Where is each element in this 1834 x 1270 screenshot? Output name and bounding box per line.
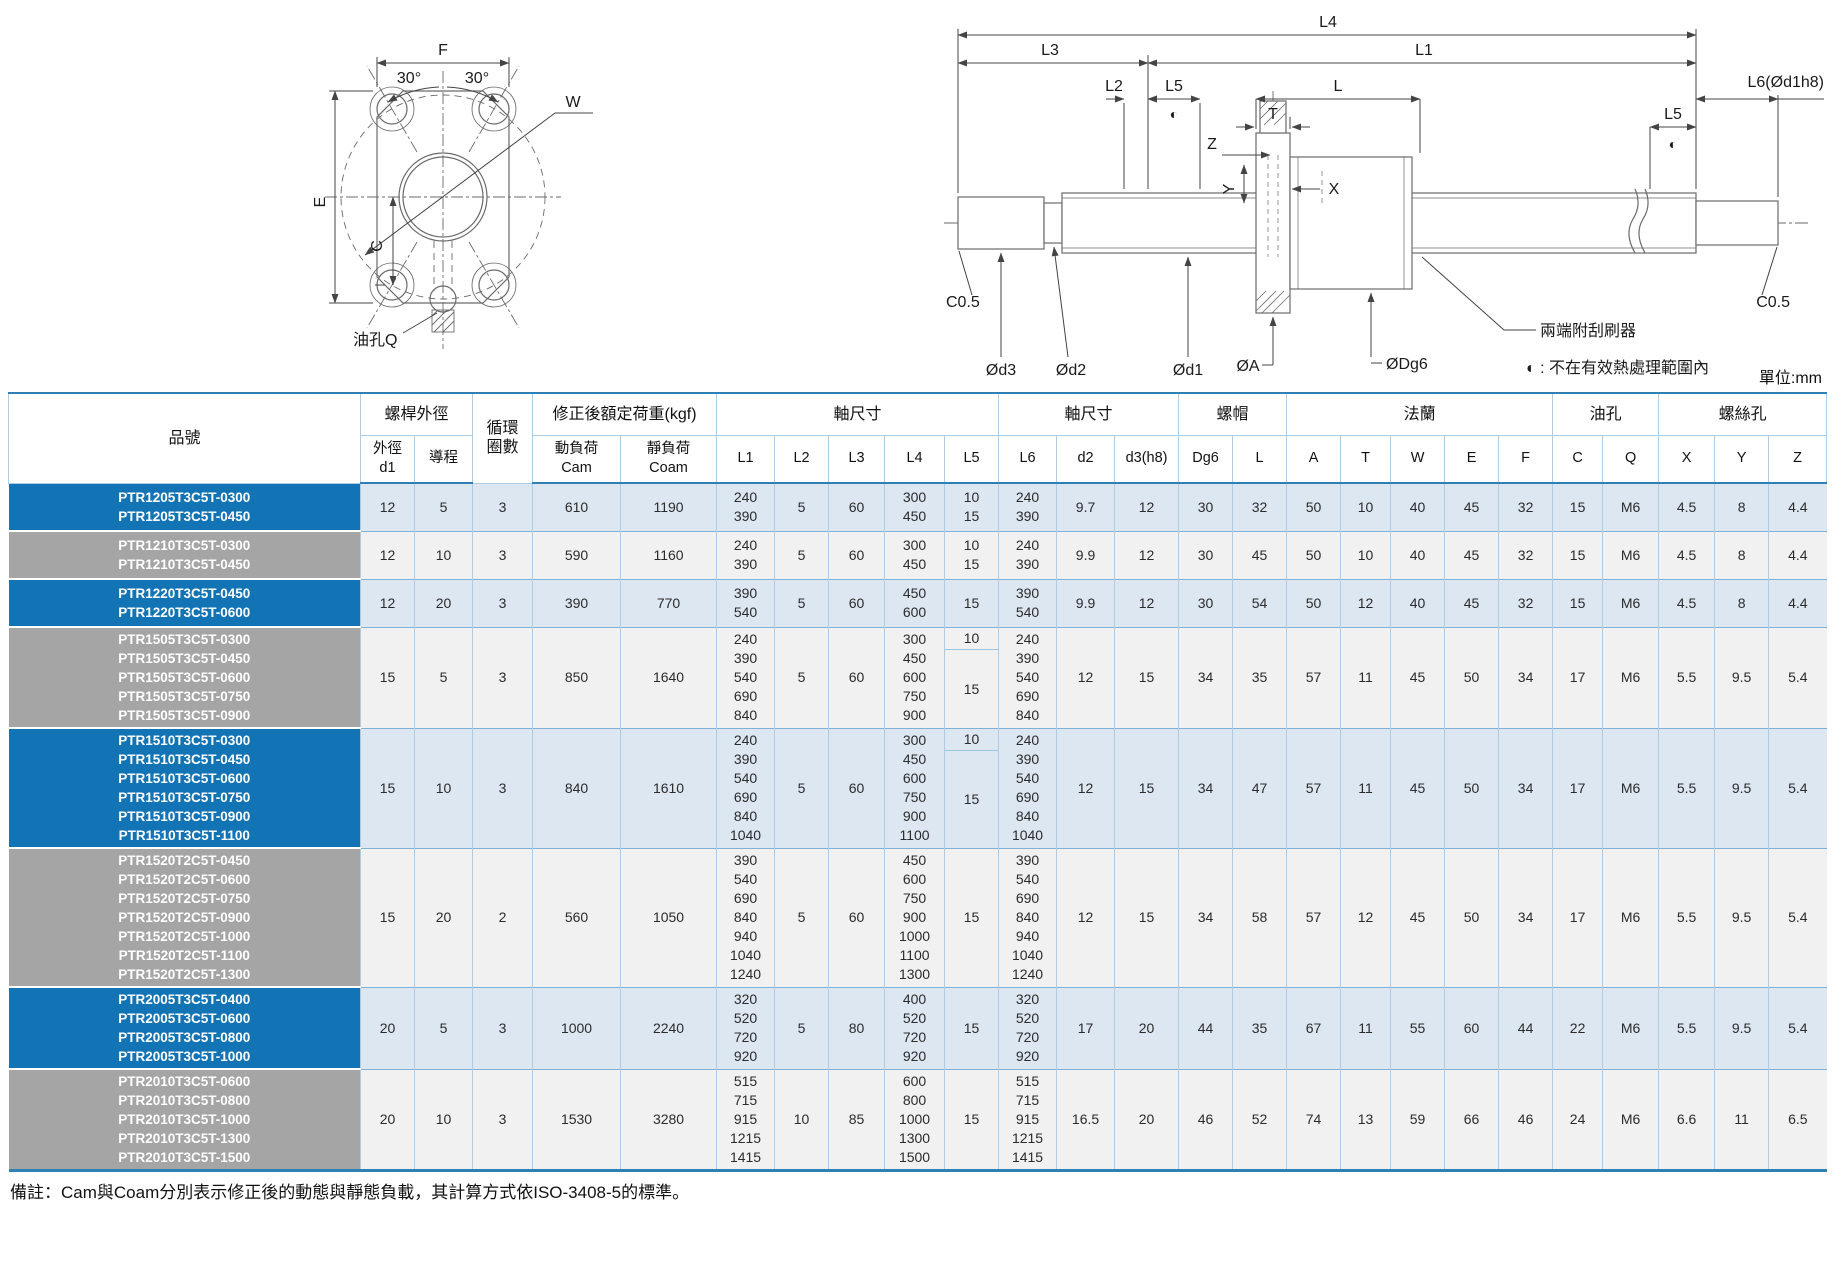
cell-lead: 10 [415, 1069, 473, 1171]
cell-L: 32 [1233, 483, 1287, 531]
cell-X: 6.6 [1659, 1069, 1715, 1171]
cell-L: 45 [1233, 531, 1287, 579]
cell-Q: M6 [1603, 987, 1659, 1069]
heat-treatment-legend: ◐ : 不在有效熱處理範圍內 [1526, 359, 1709, 377]
cell-coam: 1640 [621, 627, 717, 728]
cell-L6: 240 390 [999, 483, 1057, 531]
table-row: PTR1505T3C5T-0300 PTR1505T3C5T-0450 PTR1… [9, 627, 1827, 728]
cell-Y: 11 [1715, 1069, 1769, 1171]
model-cell: PTR1510T3C5T-0300 PTR1510T3C5T-0450 PTR1… [9, 728, 361, 848]
cell-T: 13 [1341, 1069, 1391, 1171]
cell-Y: 8 [1715, 483, 1769, 531]
header-screw-holes: 螺絲孔 [1659, 393, 1827, 435]
catalog-page: F 30° 30° E C W 油孔Q [0, 0, 1834, 1270]
cell-Z: 5.4 [1769, 728, 1827, 848]
cell-Q: M6 [1603, 728, 1659, 848]
header-rated-load: 修正後額定荷重(kgf) [533, 393, 717, 435]
cell-L: 52 [1233, 1069, 1287, 1171]
cell-A: 50 [1287, 531, 1341, 579]
cell-L3: 60 [829, 627, 885, 728]
cell-coam: 1610 [621, 728, 717, 848]
cell-E: 50 [1445, 848, 1499, 987]
dim-X: X [1329, 181, 1340, 198]
cell-L2: 5 [775, 627, 829, 728]
header-screw-od: 螺桿外徑 [361, 393, 473, 435]
cell-L3: 60 [829, 848, 885, 987]
header-Z: Z [1769, 435, 1827, 483]
cell-L4: 450 600 [885, 579, 945, 627]
dim-W: W [565, 94, 581, 111]
cell-E: 45 [1445, 483, 1499, 531]
cell-L: 47 [1233, 728, 1287, 848]
table-row: PTR2010T3C5T-0600 PTR2010T3C5T-0800 PTR2… [9, 1069, 1827, 1171]
cell-L5: 15 [945, 987, 999, 1069]
cell-T: 12 [1341, 579, 1391, 627]
header-d3h8: d3(h8) [1115, 435, 1179, 483]
cell-L3: 60 [829, 531, 885, 579]
cell-L: 54 [1233, 579, 1287, 627]
cell-L5: 10 15 [945, 531, 999, 579]
dim-d1: Ød1 [1173, 362, 1203, 379]
cell-W: 40 [1391, 483, 1445, 531]
header-F: F [1499, 435, 1553, 483]
cell-L5: 10 15 [945, 483, 999, 531]
table-row: PTR1205T3C5T-0300 PTR1205T3C5T-0450 12 5… [9, 483, 1827, 531]
cell-C: 24 [1553, 1069, 1603, 1171]
cell-Dg6: 34 [1179, 848, 1233, 987]
cell-E: 50 [1445, 627, 1499, 728]
header-L: L [1233, 435, 1287, 483]
header-L2: L2 [775, 435, 829, 483]
cell-L3: 80 [829, 987, 885, 1069]
cell-d2: 12 [1057, 728, 1115, 848]
dim-Dg6: ØDg6 [1386, 356, 1428, 373]
wiper-note: 兩端附刮刷器 [1540, 322, 1636, 340]
dim-L4: L4 [1319, 14, 1337, 31]
cell-L6: 240 390 540 690 840 1040 [999, 728, 1057, 848]
cell-L3: 60 [829, 483, 885, 531]
cell-L6: 320 520 720 920 [999, 987, 1057, 1069]
cell-d1: 20 [361, 1069, 415, 1171]
cell-cam: 850 [533, 627, 621, 728]
dim-Z: Z [1207, 136, 1217, 153]
header-cam: 動負荷 Cam [533, 435, 621, 483]
model-cell: PTR1520T2C5T-0450 PTR1520T2C5T-0600 PTR1… [9, 848, 361, 987]
cell-F: 34 [1499, 627, 1553, 728]
cell-Q: M6 [1603, 579, 1659, 627]
header-L4: L4 [885, 435, 945, 483]
cell-A: 50 [1287, 483, 1341, 531]
cell-L1: 240 390 [717, 531, 775, 579]
cell-F: 34 [1499, 848, 1553, 987]
cell-d1: 12 [361, 531, 415, 579]
cell-L1: 320 520 720 920 [717, 987, 775, 1069]
dim-T: T [1268, 106, 1278, 123]
cell-L5: 15 [945, 848, 999, 987]
header-Dg6: Dg6 [1179, 435, 1233, 483]
cell-circuits: 3 [473, 579, 533, 627]
cell-coam: 1050 [621, 848, 717, 987]
cell-Q: M6 [1603, 531, 1659, 579]
cell-L6: 390 540 [999, 579, 1057, 627]
cell-T: 11 [1341, 627, 1391, 728]
cell-L6: 390 540 690 840 940 1040 1240 [999, 848, 1057, 987]
cell-L5-bottom: 15 [945, 651, 998, 728]
cell-T: 11 [1341, 987, 1391, 1069]
cell-d3: 20 [1115, 1069, 1179, 1171]
cell-F: 32 [1499, 531, 1553, 579]
cell-coam: 1160 [621, 531, 717, 579]
cell-L1: 390 540 [717, 579, 775, 627]
cell-L1: 390 540 690 840 940 1040 1240 [717, 848, 775, 987]
cell-W: 45 [1391, 627, 1445, 728]
cell-Z: 4.4 [1769, 483, 1827, 531]
cell-lead: 20 [415, 579, 473, 627]
chamfer-right: C0.5 [1756, 294, 1790, 311]
dim-L5-right: L5 [1664, 106, 1682, 123]
cell-L2: 5 [775, 531, 829, 579]
cell-coam: 1190 [621, 483, 717, 531]
cell-Dg6: 30 [1179, 579, 1233, 627]
cell-d3: 15 [1115, 728, 1179, 848]
cell-W: 45 [1391, 728, 1445, 848]
cell-L4: 300 450 [885, 531, 945, 579]
cell-C: 17 [1553, 627, 1603, 728]
table-row: PTR2005T3C5T-0400 PTR2005T3C5T-0600 PTR2… [9, 987, 1827, 1069]
cell-d3: 12 [1115, 483, 1179, 531]
cell-L5: 10 15 [945, 627, 999, 728]
flange-front-view-drawing: F 30° 30° E C W 油孔Q [225, 15, 665, 360]
cell-L5: 10 15 [945, 728, 999, 848]
footnote: 備註：Cam與Coam分別表示修正後的動態與靜態負載，其計算方式依ISO-340… [10, 1178, 689, 1203]
model-cell: PTR2010T3C5T-0600 PTR2010T3C5T-0800 PTR2… [9, 1069, 361, 1171]
table-row: PTR1210T3C5T-0300 PTR1210T3C5T-0450 12 1… [9, 531, 1827, 579]
cell-coam: 3280 [621, 1069, 717, 1171]
header-oil-hole: 油孔 [1553, 393, 1659, 435]
cell-A: 67 [1287, 987, 1341, 1069]
cell-F: 32 [1499, 483, 1553, 531]
cell-W: 45 [1391, 848, 1445, 987]
cell-L3: 85 [829, 1069, 885, 1171]
cell-circuits: 3 [473, 728, 533, 848]
cell-Dg6: 34 [1179, 728, 1233, 848]
cell-C: 17 [1553, 728, 1603, 848]
cell-L2: 5 [775, 483, 829, 531]
cell-C: 22 [1553, 987, 1603, 1069]
cell-d2: 12 [1057, 627, 1115, 728]
cell-L: 58 [1233, 848, 1287, 987]
dim-angle-right: 30° [465, 70, 489, 87]
cell-T: 10 [1341, 483, 1391, 531]
cell-circuits: 2 [473, 848, 533, 987]
dim-L1: L1 [1415, 42, 1433, 59]
cell-W: 40 [1391, 531, 1445, 579]
header-L3: L3 [829, 435, 885, 483]
header-lead: 導程 [415, 435, 473, 483]
cell-E: 45 [1445, 579, 1499, 627]
header-C: C [1553, 435, 1603, 483]
cell-X: 5.5 [1659, 848, 1715, 987]
cell-Dg6: 34 [1179, 627, 1233, 728]
dim-L: L [1334, 78, 1343, 95]
header-part-no: 品號 [9, 393, 361, 483]
cell-L6: 240 390 [999, 531, 1057, 579]
cell-F: 32 [1499, 579, 1553, 627]
cell-circuits: 3 [473, 987, 533, 1069]
cell-cam: 840 [533, 728, 621, 848]
cell-Dg6: 30 [1179, 531, 1233, 579]
cell-L4: 400 520 720 920 [885, 987, 945, 1069]
cell-Z: 5.4 [1769, 627, 1827, 728]
cell-L1: 240 390 [717, 483, 775, 531]
cell-d2: 17 [1057, 987, 1115, 1069]
cell-T: 10 [1341, 531, 1391, 579]
cell-circuits: 3 [473, 627, 533, 728]
cell-d2: 9.9 [1057, 579, 1115, 627]
header-Q: Q [1603, 435, 1659, 483]
cell-lead: 5 [415, 627, 473, 728]
model-cell: PTR1505T3C5T-0300 PTR1505T3C5T-0450 PTR1… [9, 627, 361, 728]
cell-X: 5.5 [1659, 627, 1715, 728]
cell-L6: 515 715 915 1215 1415 [999, 1069, 1057, 1171]
cell-L2: 10 [775, 1069, 829, 1171]
cell-Y: 9.5 [1715, 627, 1769, 728]
cell-L1: 240 390 540 690 840 1040 [717, 728, 775, 848]
cell-lead: 5 [415, 483, 473, 531]
header-E: E [1445, 435, 1499, 483]
header-nut: 螺帽 [1179, 393, 1287, 435]
cell-Z: 6.5 [1769, 1069, 1827, 1171]
cell-cam: 1530 [533, 1069, 621, 1171]
cell-X: 4.5 [1659, 579, 1715, 627]
center-lines [325, 66, 561, 349]
header-W: W [1391, 435, 1445, 483]
cell-circuits: 3 [473, 1069, 533, 1171]
header-L1: L1 [717, 435, 775, 483]
cell-d1: 15 [361, 848, 415, 987]
cell-F: 34 [1499, 728, 1553, 848]
cell-X: 5.5 [1659, 987, 1715, 1069]
cell-cam: 390 [533, 579, 621, 627]
cell-A: 57 [1287, 848, 1341, 987]
table-row: PTR1510T3C5T-0300 PTR1510T3C5T-0450 PTR1… [9, 728, 1827, 848]
cell-L5-bottom: 15 [945, 752, 998, 848]
header-d2: d2 [1057, 435, 1115, 483]
cell-L: 35 [1233, 627, 1287, 728]
cell-d3: 12 [1115, 531, 1179, 579]
cell-d2: 9.7 [1057, 483, 1115, 531]
cell-Q: M6 [1603, 627, 1659, 728]
cell-Q: M6 [1603, 483, 1659, 531]
cell-C: 15 [1553, 579, 1603, 627]
cell-circuits: 3 [473, 483, 533, 531]
table-row: PTR1220T3C5T-0450 PTR1220T3C5T-0600 12 2… [9, 579, 1827, 627]
cell-L3: 60 [829, 579, 885, 627]
cell-E: 60 [1445, 987, 1499, 1069]
dim-L6: L6(Ød1h8) [1748, 74, 1825, 91]
cell-L6: 240 390 540 690 840 [999, 627, 1057, 728]
cell-L5: 15 [945, 1069, 999, 1171]
cell-X: 4.5 [1659, 531, 1715, 579]
header-A: A [1287, 435, 1341, 483]
cell-L: 35 [1233, 987, 1287, 1069]
half-heat-symbol-left: ◐ [1170, 106, 1178, 122]
cell-Dg6: 44 [1179, 987, 1233, 1069]
cell-Y: 9.5 [1715, 848, 1769, 987]
cell-lead: 10 [415, 531, 473, 579]
cell-Y: 8 [1715, 579, 1769, 627]
cell-L4: 300 450 [885, 483, 945, 531]
oil-hole-label: 油孔Q [353, 331, 397, 349]
header-T: T [1341, 435, 1391, 483]
cell-Y: 8 [1715, 531, 1769, 579]
dim-F: F [438, 42, 448, 59]
header-group-row: 品號 螺桿外徑 循環 圈數 修正後額定荷重(kgf) 軸尺寸 軸尺寸 螺帽 法蘭… [9, 393, 1827, 435]
cell-d1: 15 [361, 728, 415, 848]
cell-d3: 15 [1115, 848, 1179, 987]
cell-d3: 20 [1115, 987, 1179, 1069]
cell-d1: 20 [361, 987, 415, 1069]
cell-E: 45 [1445, 531, 1499, 579]
cell-d1: 12 [361, 483, 415, 531]
cell-Q: M6 [1603, 848, 1659, 987]
unit-label: 單位:mm [1759, 364, 1822, 388]
cell-F: 46 [1499, 1069, 1553, 1171]
cell-d3: 12 [1115, 579, 1179, 627]
cell-E: 66 [1445, 1069, 1499, 1171]
header-X: X [1659, 435, 1715, 483]
cell-T: 12 [1341, 848, 1391, 987]
cell-Z: 5.4 [1769, 987, 1827, 1069]
cell-Y: 9.5 [1715, 987, 1769, 1069]
cell-X: 4.5 [1659, 483, 1715, 531]
cell-d1: 12 [361, 579, 415, 627]
header-flange: 法蘭 [1287, 393, 1553, 435]
cell-L1: 515 715 915 1215 1415 [717, 1069, 775, 1171]
header-shaft-dims-2: 軸尺寸 [999, 393, 1179, 435]
cell-F: 44 [1499, 987, 1553, 1069]
cell-d1: 15 [361, 627, 415, 728]
cell-d2: 16.5 [1057, 1069, 1115, 1171]
header-circuits: 循環 圈數 [473, 393, 533, 483]
dim-L5-left: L5 [1165, 78, 1183, 95]
dim-Y: Y [1221, 183, 1238, 194]
cell-circuits: 3 [473, 531, 533, 579]
header-Y: Y [1715, 435, 1769, 483]
cell-L5-top: 10 [945, 729, 998, 751]
cell-cam: 610 [533, 483, 621, 531]
shaft-side-view-drawing: L4 L3 L1 L2 L5 ◐ L T Z Y X L5 ◐ L6(Ød1h8… [938, 5, 1830, 387]
cell-lead: 10 [415, 728, 473, 848]
cell-L1: 240 390 540 690 840 [717, 627, 775, 728]
cell-C: 15 [1553, 531, 1603, 579]
dimension-lines [329, 57, 593, 333]
chamfer-left: C0.5 [946, 294, 980, 311]
cell-W: 55 [1391, 987, 1445, 1069]
cell-L5: 15 [945, 579, 999, 627]
cell-L4: 600 800 1000 1300 1500 [885, 1069, 945, 1171]
cell-Y: 9.5 [1715, 728, 1769, 848]
cell-L2: 5 [775, 728, 829, 848]
header-L6: L6 [999, 435, 1057, 483]
cell-C: 15 [1553, 483, 1603, 531]
shaft-profile [958, 101, 1778, 313]
cell-Z: 5.4 [1769, 848, 1827, 987]
cell-L3: 60 [829, 728, 885, 848]
model-cell: PTR1220T3C5T-0450 PTR1220T3C5T-0600 [9, 579, 361, 627]
cell-lead: 20 [415, 848, 473, 987]
half-heat-symbol-right: ◐ [1669, 136, 1677, 152]
dim-A: ØA [1236, 358, 1259, 375]
cell-A: 50 [1287, 579, 1341, 627]
cell-d2: 12 [1057, 848, 1115, 987]
table-row: PTR1520T2C5T-0450 PTR1520T2C5T-0600 PTR1… [9, 848, 1827, 987]
dim-C: C [369, 240, 386, 252]
header-L5: L5 [945, 435, 999, 483]
header-coam: 靜負荷 Coam [621, 435, 717, 483]
header-d1: 外徑 d1 [361, 435, 415, 483]
cell-Dg6: 30 [1179, 483, 1233, 531]
model-cell: PTR1210T3C5T-0300 PTR1210T3C5T-0450 [9, 531, 361, 579]
cell-A: 57 [1287, 728, 1341, 848]
spec-table: 品號 螺桿外徑 循環 圈數 修正後額定荷重(kgf) 軸尺寸 軸尺寸 螺帽 法蘭… [8, 392, 1827, 1172]
model-cell: PTR2005T3C5T-0400 PTR2005T3C5T-0600 PTR2… [9, 987, 361, 1069]
cell-coam: 770 [621, 579, 717, 627]
cell-L2: 5 [775, 987, 829, 1069]
dim-L2: L2 [1105, 78, 1123, 95]
cell-Dg6: 46 [1179, 1069, 1233, 1171]
cell-A: 74 [1287, 1069, 1341, 1171]
cell-Z: 4.4 [1769, 579, 1827, 627]
cell-cam: 1000 [533, 987, 621, 1069]
cell-cam: 560 [533, 848, 621, 987]
cell-coam: 2240 [621, 987, 717, 1069]
dim-L3: L3 [1041, 42, 1059, 59]
cell-d2: 9.9 [1057, 531, 1115, 579]
header-shaft-dims-1: 軸尺寸 [717, 393, 999, 435]
dim-d2: Ød2 [1056, 362, 1086, 379]
cell-L4: 450 600 750 900 1000 1100 1300 [885, 848, 945, 987]
cell-cam: 590 [533, 531, 621, 579]
cell-C: 17 [1553, 848, 1603, 987]
cell-L5-top: 10 [945, 628, 998, 650]
cell-E: 50 [1445, 728, 1499, 848]
dim-E: E [312, 197, 329, 208]
cell-T: 11 [1341, 728, 1391, 848]
cell-Z: 4.4 [1769, 531, 1827, 579]
model-cell: PTR1205T3C5T-0300 PTR1205T3C5T-0450 [9, 483, 361, 531]
cell-L4: 300 450 600 750 900 1100 [885, 728, 945, 848]
cell-lead: 5 [415, 987, 473, 1069]
dim-d3: Ød3 [986, 362, 1016, 379]
cell-L2: 5 [775, 848, 829, 987]
cell-X: 5.5 [1659, 728, 1715, 848]
cell-Q: M6 [1603, 1069, 1659, 1171]
cell-L2: 5 [775, 579, 829, 627]
cell-W: 40 [1391, 579, 1445, 627]
cell-d3: 15 [1115, 627, 1179, 728]
cell-W: 59 [1391, 1069, 1445, 1171]
cell-L4: 300 450 600 750 900 [885, 627, 945, 728]
cell-A: 57 [1287, 627, 1341, 728]
dim-angle-left: 30° [397, 70, 421, 87]
